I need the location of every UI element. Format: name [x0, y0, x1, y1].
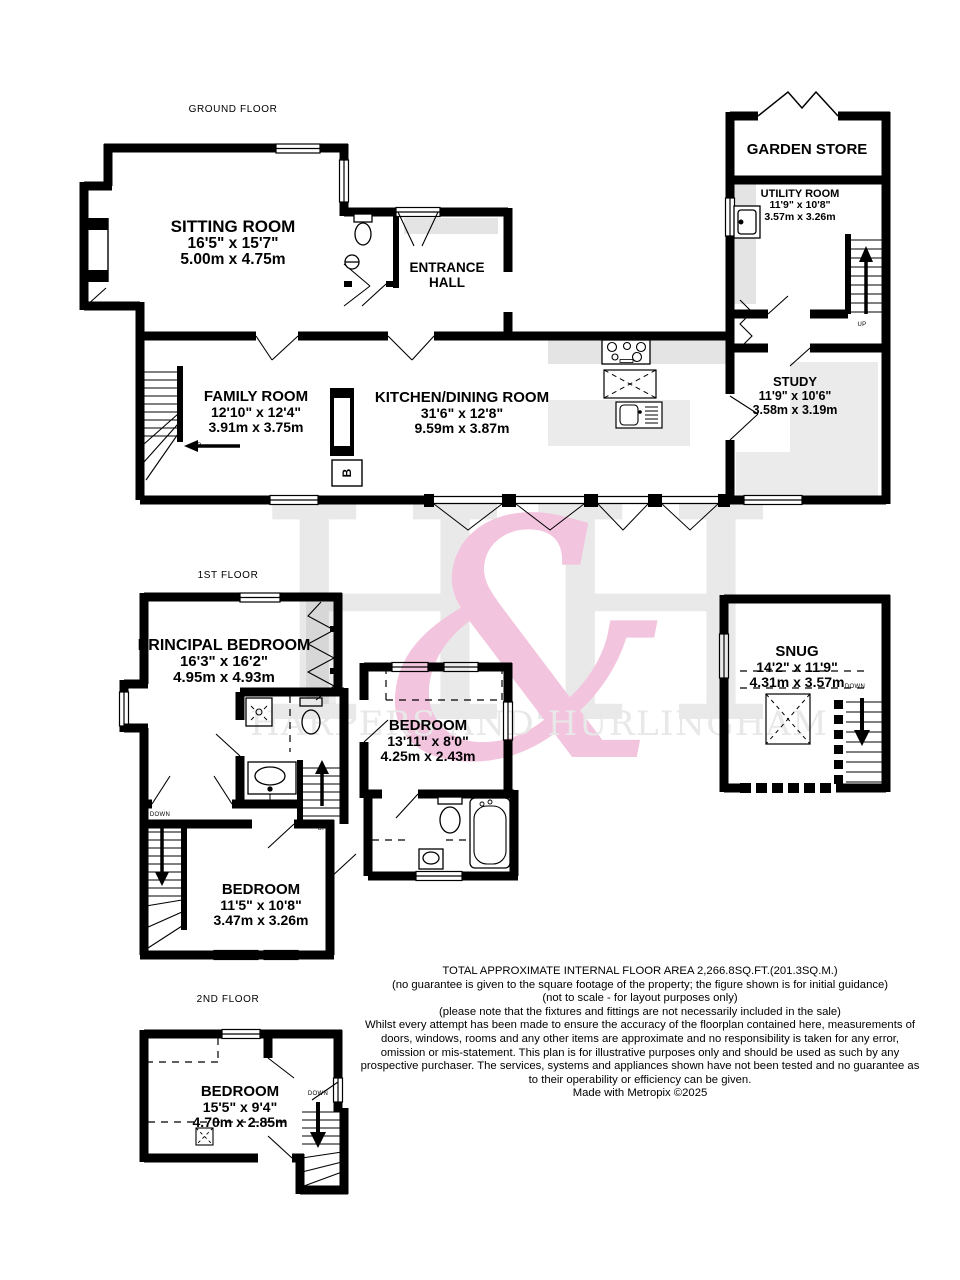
fixtures-note: (please note that the fixtures and fitti…: [320, 1006, 960, 1020]
kitchen-island-icon: [604, 370, 656, 398]
second-floor-down-stairs: [302, 1102, 342, 1186]
room-label-garden-store: GARDEN STORE: [747, 142, 868, 158]
hob-icon: [602, 340, 650, 364]
room-label-kitchen-dining-room: KITCHEN/DINING ROOM 31'6" x 12'8" 9.59m …: [375, 390, 549, 436]
wc-toilet-icon: [354, 214, 372, 245]
room-label-bedroom-3: BEDROOM 11'5" x 10'8" 3.47m x 3.26m: [214, 882, 309, 928]
floor-label-ground: GROUND FLOOR: [189, 104, 278, 115]
kitchen-glazed-doors: [424, 494, 730, 530]
room-label-study: STUDY 11'9" x 10'6" 3.58m x 3.19m: [753, 375, 838, 417]
bath-icon: [470, 798, 510, 868]
credit-text: Made with Metropix ©2025: [320, 1087, 960, 1101]
floor-shading: [306, 184, 878, 704]
stairs-down-label-1f: DOWN: [150, 812, 170, 818]
ensuite-sink-icon: [248, 762, 296, 804]
floor-label-first: 1ST FLOOR: [198, 570, 259, 581]
utility-sink-icon: [734, 206, 760, 238]
room-label-principal-bedroom: PRINCIPAL BEDROOM 16'3" x 16'2" 4.95m x …: [138, 637, 311, 685]
footer-notes: TOTAL APPROXIMATE INTERNAL FLOOR AREA 2,…: [320, 965, 960, 1101]
disclaimer-text: Whilst every attempt has been made to en…: [360, 1019, 920, 1087]
floor-label-second: 2ND FLOOR: [197, 994, 260, 1005]
room-label-sitting-room: SITTING ROOM 16'5" x 15'7" 5.00m x 4.75m: [171, 218, 296, 268]
room-label-family-room: FAMILY ROOM 12'10" x 12'4" 3.91m x 3.75m: [204, 389, 308, 435]
second-floor-rooflight: [196, 1128, 213, 1145]
bathroom-toilet-icon: [438, 797, 462, 833]
stairs-up-label-gf: UP: [858, 322, 867, 328]
kitchen-sink-icon: [616, 402, 662, 428]
stairs-down-label-snug: DOWN: [845, 684, 865, 690]
snug-down-stairs: [834, 698, 884, 784]
stairs-up-label-family: UP: [193, 443, 202, 449]
room-label-snug: SNUG 14'2" x 11'9" 4.31m x 3.57m: [750, 644, 845, 690]
ensuite-toilet-icon: [300, 698, 322, 734]
room-label-utility-room: UTILITY ROOM 11'9" x 10'8" 3.57m x 3.26m: [761, 188, 840, 223]
shower-icon: [246, 698, 272, 726]
gable-roof-lines: [758, 92, 838, 116]
room-label-bedroom-2: BEDROOM 13'11" x 8'0" 4.25m x 2.43m: [381, 718, 476, 764]
ground-floor-up-stairs: [850, 240, 884, 314]
bathroom-sink-icon: [419, 849, 443, 869]
room-label-entrance-hall: ENTRANCE HALL: [397, 260, 497, 290]
total-area-text: TOTAL APPROXIMATE INTERNAL FLOOR AREA 2,…: [320, 965, 960, 979]
room-label-bedroom-2f: BEDROOM 15'5" x 9'4" 4.70m x 2.85m: [193, 1084, 288, 1130]
scale-note: (not to scale - for layout purposes only…: [320, 992, 960, 1006]
first-floor-up-stairs: [302, 760, 342, 816]
floorplan-page: H H & HARPERS AND HURLINGHAM GROUND FLOO…: [0, 0, 960, 1280]
wc-basin-icon: [345, 255, 359, 269]
stairs-up-label-1f: UP: [318, 826, 327, 832]
first-floor-down-stairs: [146, 828, 182, 948]
guarantee-note: (no guarantee is given to the square foo…: [320, 979, 960, 993]
boiler-label: B: [340, 469, 354, 478]
